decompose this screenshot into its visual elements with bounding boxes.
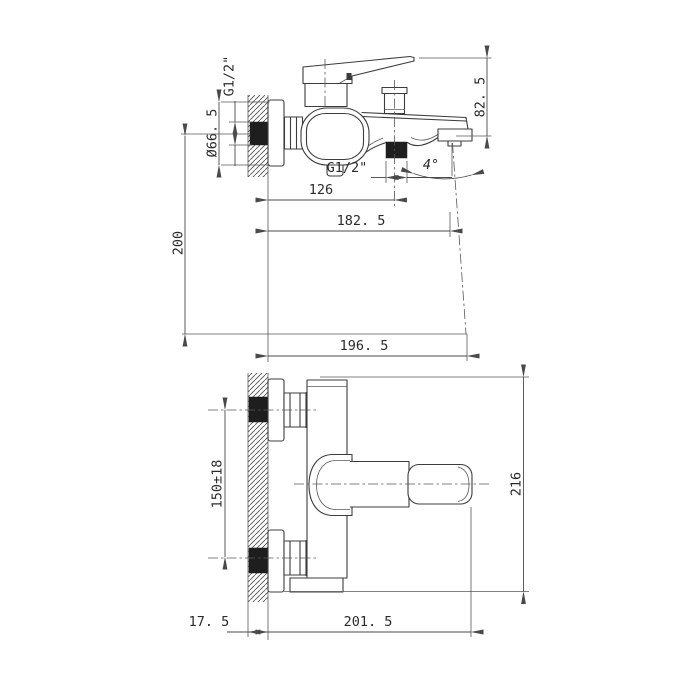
dim-label-182-5: 182. 5 xyxy=(337,213,386,229)
upper-inlet-thread-block xyxy=(249,397,268,422)
dim-label-200: 200 xyxy=(171,231,187,255)
dim-label-126: 126 xyxy=(309,182,333,198)
dim-label-201-5: 201. 5 xyxy=(344,614,393,630)
dim-label-17-5: 17. 5 xyxy=(189,614,230,630)
dim-label-g12-diverter: G1/2" xyxy=(327,160,368,176)
front-view-wall xyxy=(248,373,268,640)
bonnet xyxy=(305,84,347,107)
dim-label-4deg: 4° xyxy=(423,157,439,173)
lower-inlet-thread-block xyxy=(249,548,268,573)
lever-detail xyxy=(347,73,352,80)
lower-escutcheon-front xyxy=(268,530,284,592)
dim-label-82-5: 82. 5 xyxy=(473,77,489,118)
spout-front-silhouette xyxy=(290,578,343,592)
wall-thread-block xyxy=(250,122,268,145)
hex-nut-side xyxy=(285,117,303,149)
aerator-housing xyxy=(438,129,472,141)
dim-label-196-5: 196. 5 xyxy=(340,338,389,354)
dim-label-216: 216 xyxy=(509,472,525,496)
dim-label-66-5: Ø66. 5 xyxy=(205,109,221,158)
escutcheon-side xyxy=(268,100,284,166)
faucet-dimension-drawing: 82. 5 Ø66. 5 G1/2" G1/2" 4° xyxy=(0,0,700,700)
dim-label-g12-wall: G1/2" xyxy=(222,56,238,97)
technical-drawing-canvas: 82. 5 Ø66. 5 G1/2" G1/2" 4° xyxy=(0,0,700,700)
aerator-tab xyxy=(448,141,461,146)
diverter-thread-block xyxy=(386,142,407,158)
handle-boss xyxy=(309,455,352,516)
dim-label-150-18: 150±18 xyxy=(210,460,226,509)
